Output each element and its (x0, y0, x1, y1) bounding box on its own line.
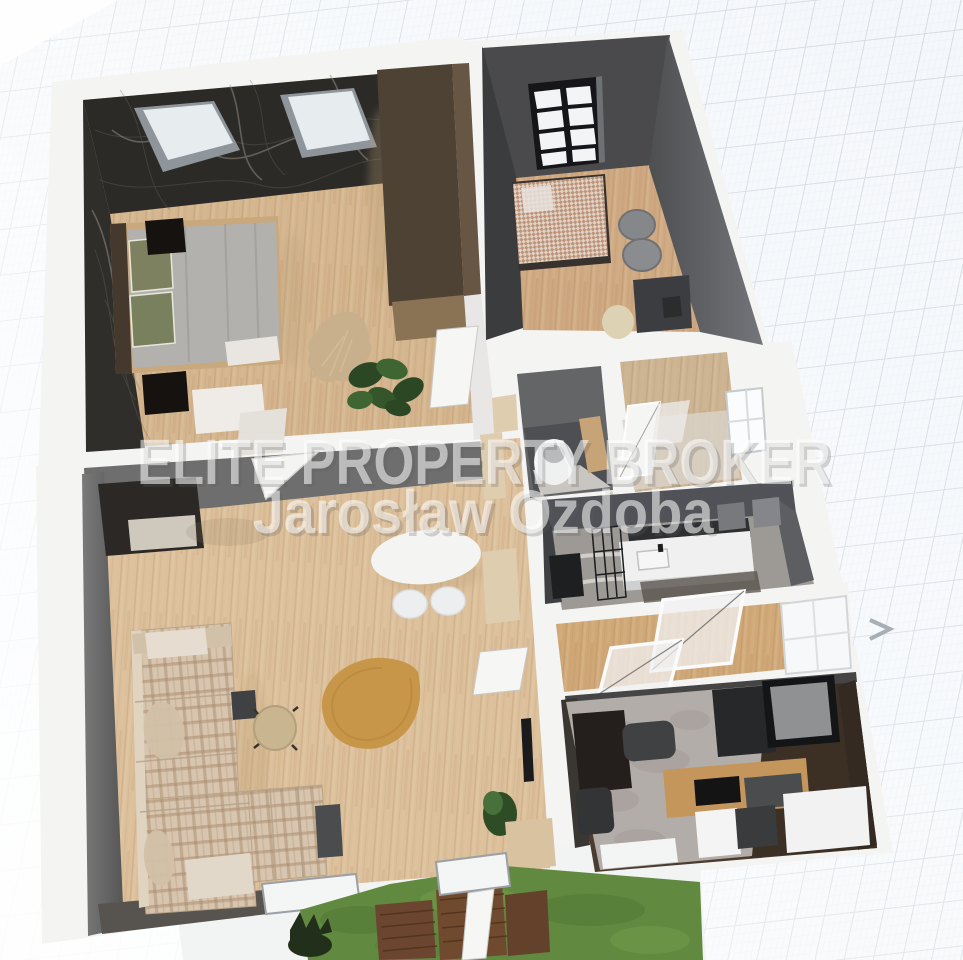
svg-text:Jarosław Ozdoba: Jarosław Ozdoba (253, 478, 715, 546)
